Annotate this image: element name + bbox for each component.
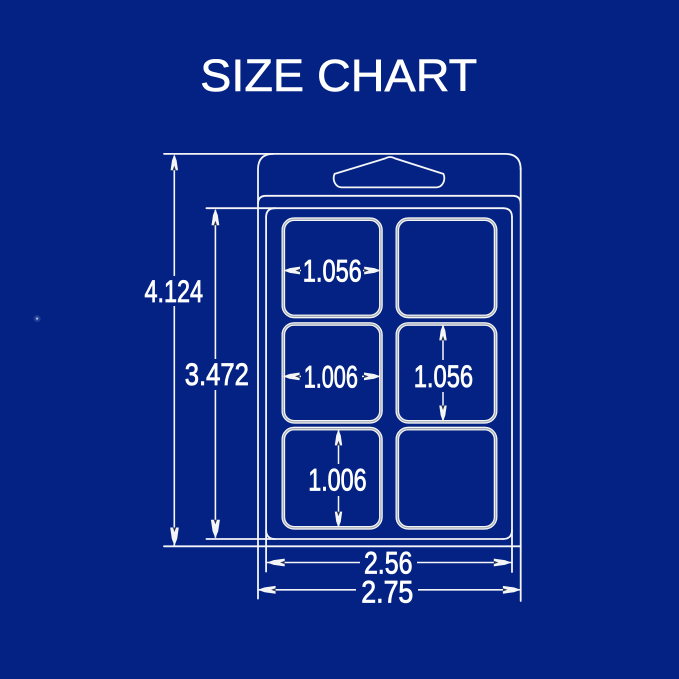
svg-text:2.75: 2.75: [361, 573, 413, 609]
svg-text:3.472: 3.472: [185, 356, 249, 392]
svg-text:4.124: 4.124: [145, 273, 204, 309]
svg-text:1.056: 1.056: [303, 252, 362, 288]
svg-text:1.056: 1.056: [414, 358, 473, 394]
svg-text:1.006: 1.006: [308, 462, 366, 498]
svg-text:SIZE CHART: SIZE CHART: [200, 50, 477, 101]
svg-text:1.006: 1.006: [304, 358, 358, 394]
